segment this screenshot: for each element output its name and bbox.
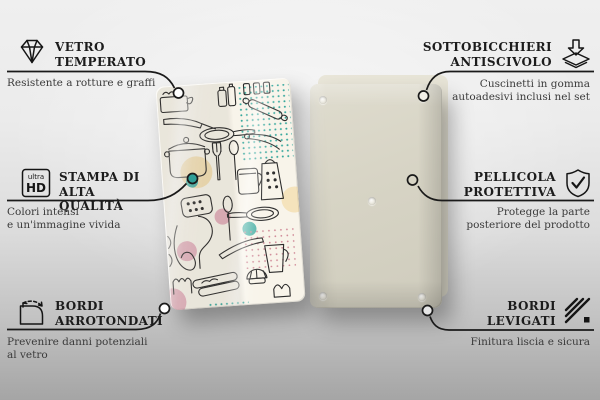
kitchen-utensils-artwork (155, 78, 305, 311)
callout-desc-line: Finitura liscia e sicura (470, 336, 590, 349)
anti-slip-pad (419, 94, 427, 102)
callout-title-line: BORDI (487, 299, 556, 314)
callout-rounded-edges: BORDI ARROTONDATI Prevenire danni potenz… (7, 297, 157, 330)
callout-desc-line: Cuscinetti in gomma (452, 78, 590, 91)
diamond-icon (17, 38, 47, 69)
callout-desc-line: al vetro (7, 349, 147, 362)
product-front-panel (155, 78, 305, 311)
anti-slip-pad (418, 293, 426, 301)
anti-slip-pad (319, 292, 327, 300)
callout-title-line: BORDI (55, 299, 163, 314)
callout-desc-line: posteriore del prodotto (466, 219, 590, 232)
anti-slip-pad (368, 197, 376, 205)
callout-title-line: ARROTONDATI (55, 314, 163, 329)
callout-desc-line: e un'immagine vivida (7, 219, 120, 232)
callout-title-line: VETRO (55, 40, 146, 55)
product-back-panel (310, 84, 442, 308)
callout-desc-line: Colori intensi (7, 206, 120, 219)
callout-protective-film: PELLICOLA PROTETTIVA Protegge la parte p… (432, 168, 592, 202)
callout-title-line: STAMPA DI ALTA (59, 170, 167, 199)
svg-text:HD: HD (26, 181, 46, 195)
callout-title-line: SOTTOBICCHIERI (423, 40, 552, 55)
callout-tempered-glass: VETRO TEMPERATO Resistente a rotture e g… (7, 38, 157, 69)
callout-title-line: PROTETTIVA (464, 185, 556, 200)
callout-print-quality: ultra HD STAMPA DI ALTA QUALITÀ Colori i… (7, 168, 167, 214)
ultra-hd-icon: ultra HD (21, 168, 51, 202)
anti-slip-pad (319, 96, 327, 104)
callout-title-line: TEMPERATO (55, 55, 146, 70)
shield-check-icon (564, 168, 592, 202)
callout-smooth-edges: BORDI LEVIGATI Finitura liscia e sicura (432, 297, 592, 329)
rounded-corner-icon (17, 297, 47, 330)
svg-text:ultra: ultra (28, 173, 44, 181)
smooth-edge-icon (564, 297, 592, 329)
callout-desc-line: Protegge la parte (466, 206, 590, 219)
callout-title-line: LEVIGATI (487, 314, 556, 329)
callout-desc-line: autoadesivi inclusi nel set (452, 91, 590, 104)
anti-slip-pad-icon (560, 38, 592, 73)
callout-desc-line: Resistente a rotture e graffi (7, 77, 155, 90)
callout-desc-line: Prevenire danni potenziali (7, 336, 147, 349)
product-infographic: VETRO TEMPERATO Resistente a rotture e g… (0, 0, 600, 400)
callout-title-line: ANTISCIVOLO (423, 55, 552, 70)
callout-anti-slip-coasters: SOTTOBICCHIERI ANTISCIVOLO Cuscinetti in… (417, 38, 592, 73)
callout-title-line: PELLICOLA (464, 170, 556, 185)
